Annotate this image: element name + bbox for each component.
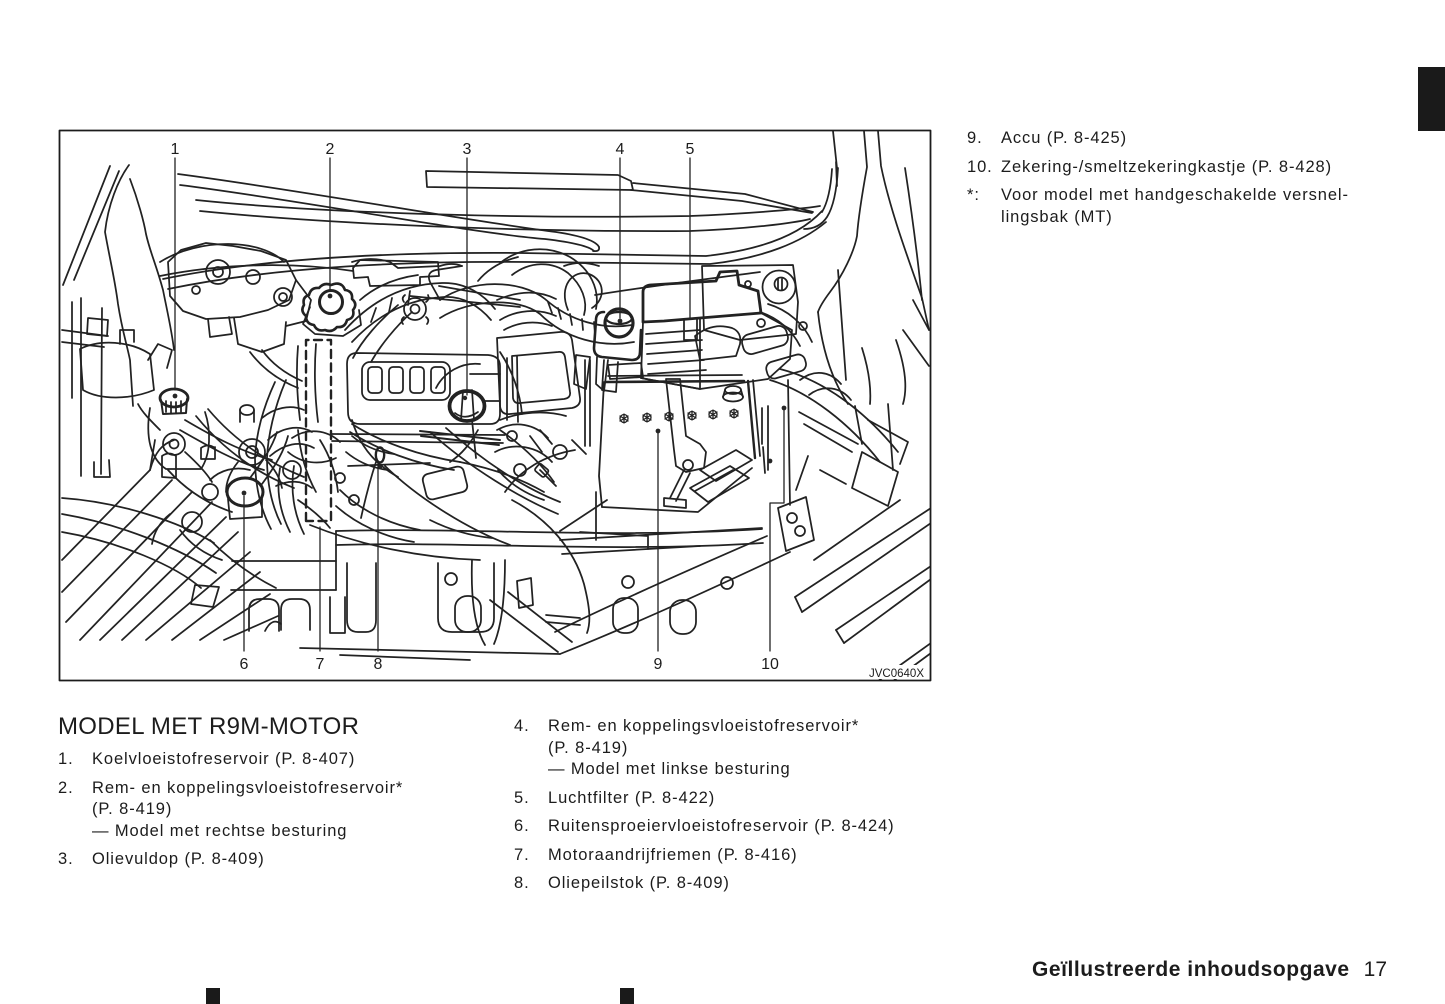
svg-text:2: 2 <box>326 141 335 158</box>
svg-text:9: 9 <box>654 656 663 673</box>
svg-text:JVC0640X: JVC0640X <box>869 668 924 680</box>
svg-text:6: 6 <box>240 656 249 673</box>
svg-text:7: 7 <box>316 656 325 673</box>
svg-text:1: 1 <box>171 141 180 158</box>
svg-text:4: 4 <box>616 141 625 158</box>
svg-text:3: 3 <box>463 141 472 158</box>
svg-text:10: 10 <box>761 656 779 673</box>
svg-text:5: 5 <box>686 141 695 158</box>
svg-text:8: 8 <box>374 656 383 673</box>
